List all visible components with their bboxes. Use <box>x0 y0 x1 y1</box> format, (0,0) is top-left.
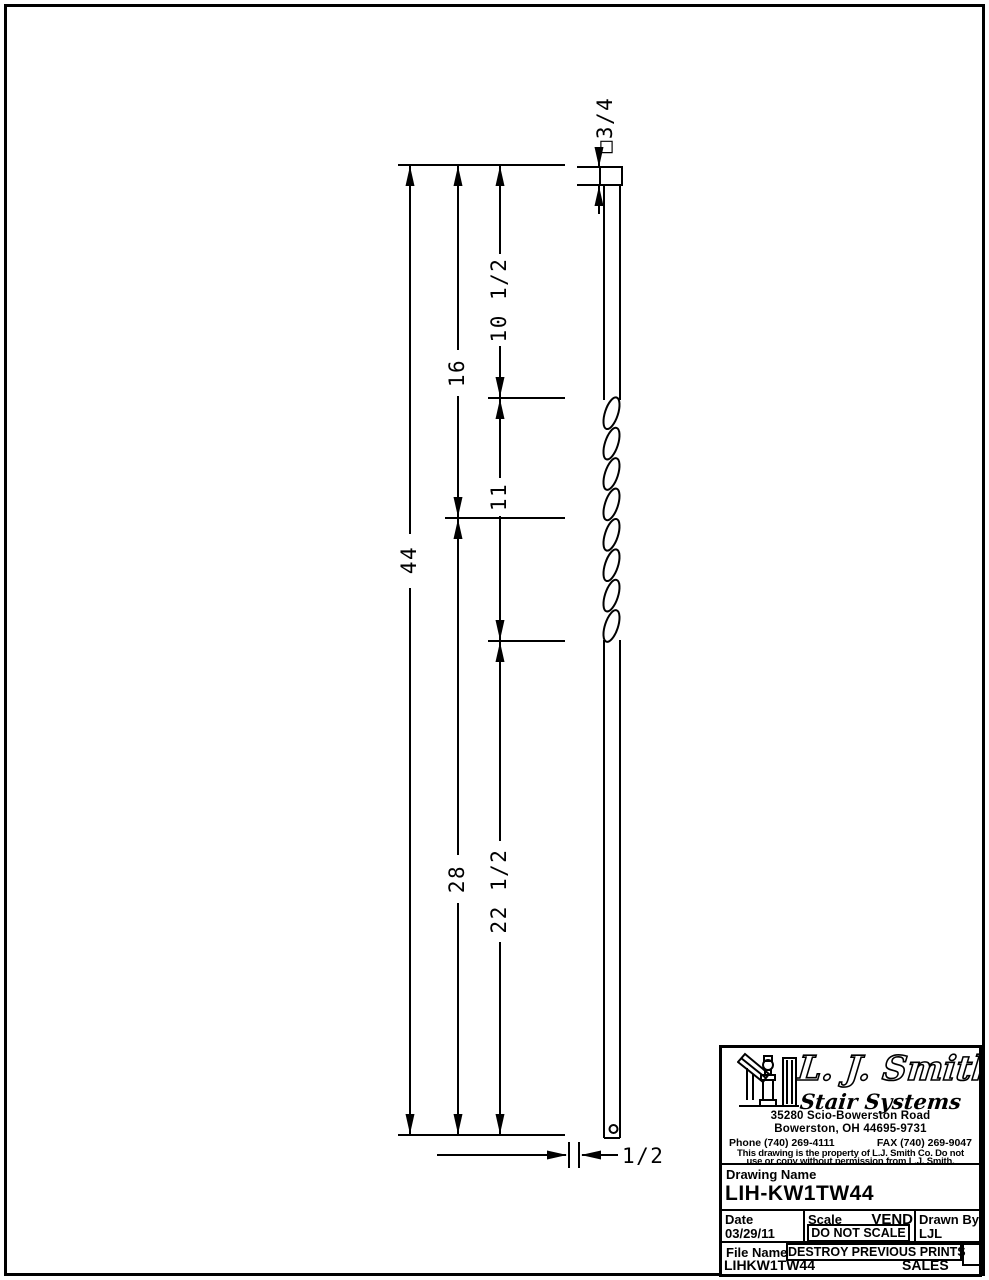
twist-turn <box>600 487 623 522</box>
arrowhead <box>454 497 463 517</box>
info-row: Date 03/29/11 Scale VEND DO NOT SCALE Dr… <box>722 1211 979 1243</box>
drawn-by-label: Drawn By <box>919 1212 979 1227</box>
company-address-line1: 35280 Scio-Bowerston Road <box>722 1110 979 1122</box>
arrowhead <box>496 399 505 419</box>
arrowhead <box>496 377 505 397</box>
twist-turn <box>600 547 623 582</box>
company-name: L. J. Smith <box>796 1048 979 1092</box>
company-address-line2: Bowerston, OH 44695-9731 <box>722 1123 979 1135</box>
stair-logo-icon <box>737 1052 801 1110</box>
title-block: L. J. Smith Stair Systems 35280 Scio-Bow… <box>719 1045 982 1277</box>
drawn-by-value: LJL <box>919 1226 942 1241</box>
dim-label-twist-length: 11 <box>487 483 511 511</box>
dim-label-twist-end-to-bottom: 22 1/2 <box>487 849 511 934</box>
arrowhead <box>496 1114 505 1134</box>
dim-label-top-to-twist-start: 10 1/2 <box>487 258 511 343</box>
twist-turn <box>600 395 623 430</box>
dim-label-twist-mid-to-bottom: 28 <box>445 865 469 893</box>
dim-label-bottom-width: 1/2 <box>622 1144 664 1168</box>
dim-label-top-square: □3/4 <box>593 97 617 154</box>
title-block-header: L. J. Smith Stair Systems 35280 Scio-Bow… <box>722 1048 979 1165</box>
drawing-name-row: Drawing Name LIH-KW1TW44 <box>722 1165 979 1211</box>
arrowhead <box>595 186 604 206</box>
drawing-name-value: LIH-KW1TW44 <box>725 1182 874 1206</box>
scale-value-box: DO NOT SCALE <box>807 1224 910 1242</box>
scale-cell: Scale VEND DO NOT SCALE <box>805 1211 916 1241</box>
arrowhead <box>547 1151 567 1160</box>
date-value: 03/29/11 <box>725 1226 775 1241</box>
twist-turn <box>600 426 623 461</box>
twist-turn <box>600 517 623 552</box>
date-label: Date <box>725 1212 753 1227</box>
baluster-bottom-hole <box>610 1125 618 1133</box>
dimension-labels: 44 16 28 10 1/2 11 22 1/2 □3/4 1/2 <box>397 97 664 1168</box>
date-cell: Date 03/29/11 <box>722 1211 805 1241</box>
arrowhead <box>454 166 463 186</box>
arrowhead <box>454 1114 463 1134</box>
dim-label-top-to-twist-mid: 16 <box>445 359 469 387</box>
dim-label-overall: 44 <box>397 546 421 574</box>
twist-turn <box>600 456 623 491</box>
drawn-by-cell: Drawn By LJL <box>916 1211 979 1241</box>
arrowhead <box>454 519 463 539</box>
department-tag: SALES <box>902 1257 949 1273</box>
file-row: File Name DESTROY PREVIOUS PRINTS LIHKW1… <box>722 1243 979 1274</box>
property-notice-line2: use or copy without permission from L.J.… <box>722 1156 979 1165</box>
arrowhead <box>406 1114 415 1134</box>
arrowhead <box>496 166 505 186</box>
file-name-value: LIHKW1TW44 <box>724 1257 815 1273</box>
twist-turn <box>600 578 623 613</box>
drawing-name-label: Drawing Name <box>726 1167 816 1182</box>
arrowhead <box>581 1151 601 1160</box>
arrowhead <box>406 166 415 186</box>
twist-turn <box>600 608 623 643</box>
arrowhead <box>496 620 505 640</box>
revision-stub-cell <box>962 1243 985 1266</box>
arrowhead <box>496 642 505 662</box>
twist-section <box>600 395 623 643</box>
baluster-top-square <box>600 167 622 185</box>
drawing-sheet: 44 16 28 10 1/2 11 22 1/2 □3/4 1/2 <box>0 0 989 1280</box>
